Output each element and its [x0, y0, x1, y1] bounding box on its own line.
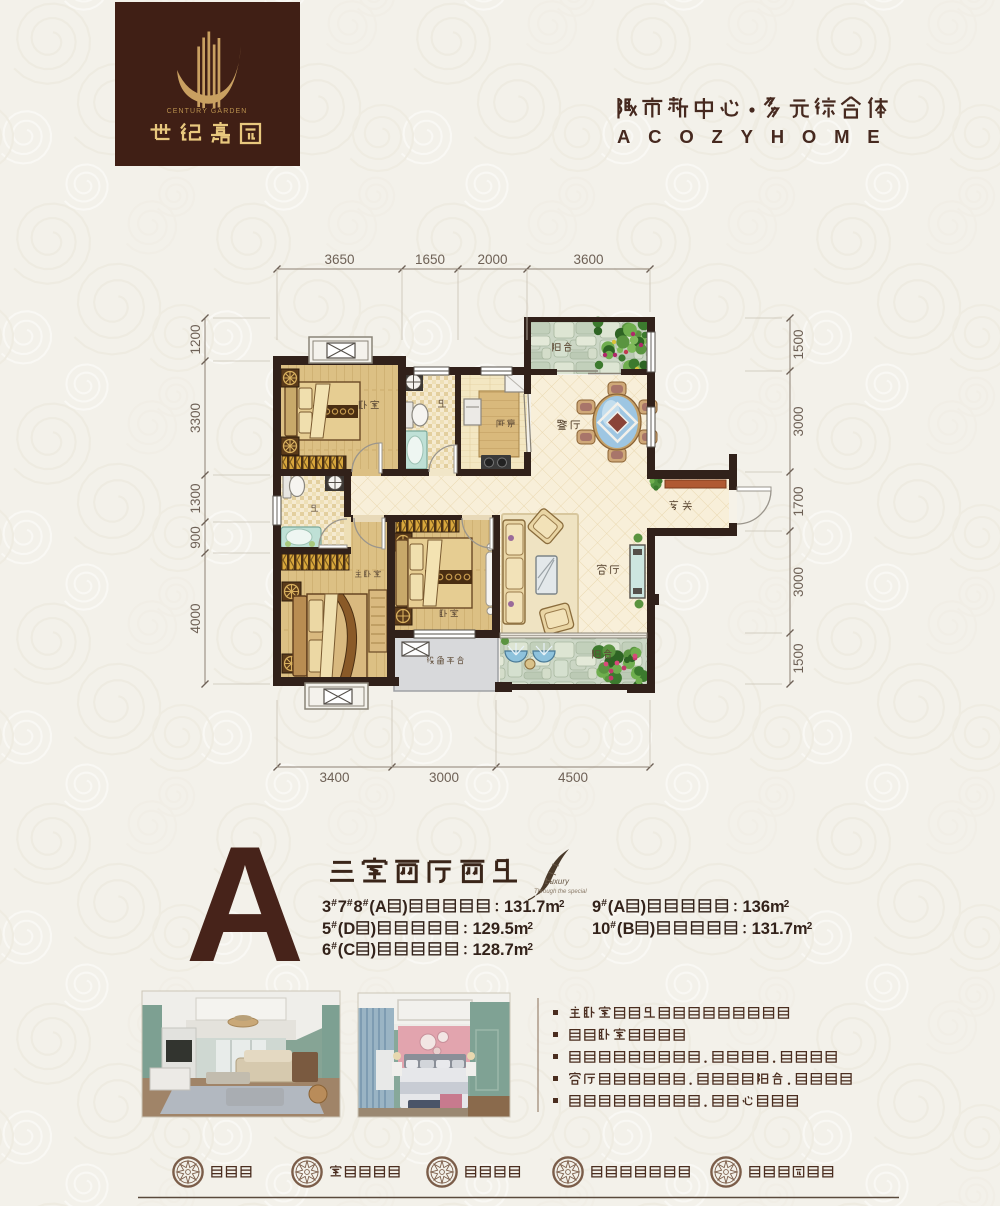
svg-text:A: A	[375, 898, 387, 916]
svg-text:900: 900	[188, 526, 203, 549]
svg-text:): )	[650, 920, 656, 938]
svg-text:7: 7	[338, 898, 347, 916]
svg-text:3000: 3000	[429, 770, 459, 785]
svg-text:8: 8	[354, 898, 363, 916]
svg-text:#: #	[331, 898, 337, 909]
svg-text:D: D	[343, 920, 355, 938]
svg-text:4500: 4500	[558, 770, 588, 785]
svg-text:#: #	[363, 898, 369, 909]
svg-text:3000: 3000	[791, 567, 806, 597]
svg-text:3000: 3000	[791, 406, 806, 436]
svg-text:1700: 1700	[791, 486, 806, 516]
svg-text:2: 2	[807, 921, 813, 932]
svg-text:): )	[641, 898, 647, 916]
svg-text:9: 9	[592, 898, 601, 916]
svg-text:1500: 1500	[791, 643, 806, 673]
svg-text:2000: 2000	[477, 252, 507, 267]
svg-text:#: #	[331, 920, 337, 931]
svg-text:CENTURY GARDEN: CENTURY GARDEN	[167, 108, 248, 115]
svg-text:136m: 136m	[743, 898, 785, 916]
svg-text:1500: 1500	[791, 329, 806, 359]
svg-text:3300: 3300	[188, 403, 203, 433]
svg-text:C: C	[343, 941, 355, 959]
svg-text:#: #	[347, 898, 353, 909]
svg-text:128.7m: 128.7m	[473, 941, 529, 959]
svg-text:3400: 3400	[319, 770, 349, 785]
svg-text:131.7m: 131.7m	[752, 920, 808, 938]
svg-text:2: 2	[528, 942, 534, 953]
svg-text:2: 2	[528, 921, 534, 932]
svg-text:131.7m: 131.7m	[504, 898, 560, 916]
svg-text:#: #	[331, 941, 337, 952]
svg-text:10: 10	[592, 920, 610, 938]
svg-text:): )	[371, 941, 377, 959]
svg-text:): )	[371, 920, 377, 938]
svg-text:Luxury: Luxury	[545, 877, 570, 886]
svg-text:1200: 1200	[188, 324, 203, 354]
svg-text:5: 5	[322, 920, 331, 938]
svg-text:3650: 3650	[324, 252, 354, 267]
svg-text:ACOZYHOME: ACOZYHOME	[617, 126, 897, 147]
svg-text:A: A	[185, 812, 304, 996]
svg-text:Through the special: Through the special	[534, 889, 587, 895]
svg-text:#: #	[610, 920, 616, 931]
svg-text:2: 2	[559, 899, 565, 910]
svg-text:A: A	[613, 898, 625, 916]
svg-text:B: B	[623, 920, 635, 938]
svg-text:6: 6	[322, 941, 331, 959]
svg-text:3: 3	[322, 898, 331, 916]
svg-text:1650: 1650	[415, 252, 445, 267]
svg-text:129.5m: 129.5m	[473, 920, 529, 938]
svg-text:1300: 1300	[188, 483, 203, 513]
svg-text:3600: 3600	[573, 252, 603, 267]
svg-text:): )	[402, 898, 408, 916]
svg-text:2: 2	[784, 899, 790, 910]
svg-text:4000: 4000	[188, 603, 203, 633]
svg-text:#: #	[601, 898, 607, 909]
